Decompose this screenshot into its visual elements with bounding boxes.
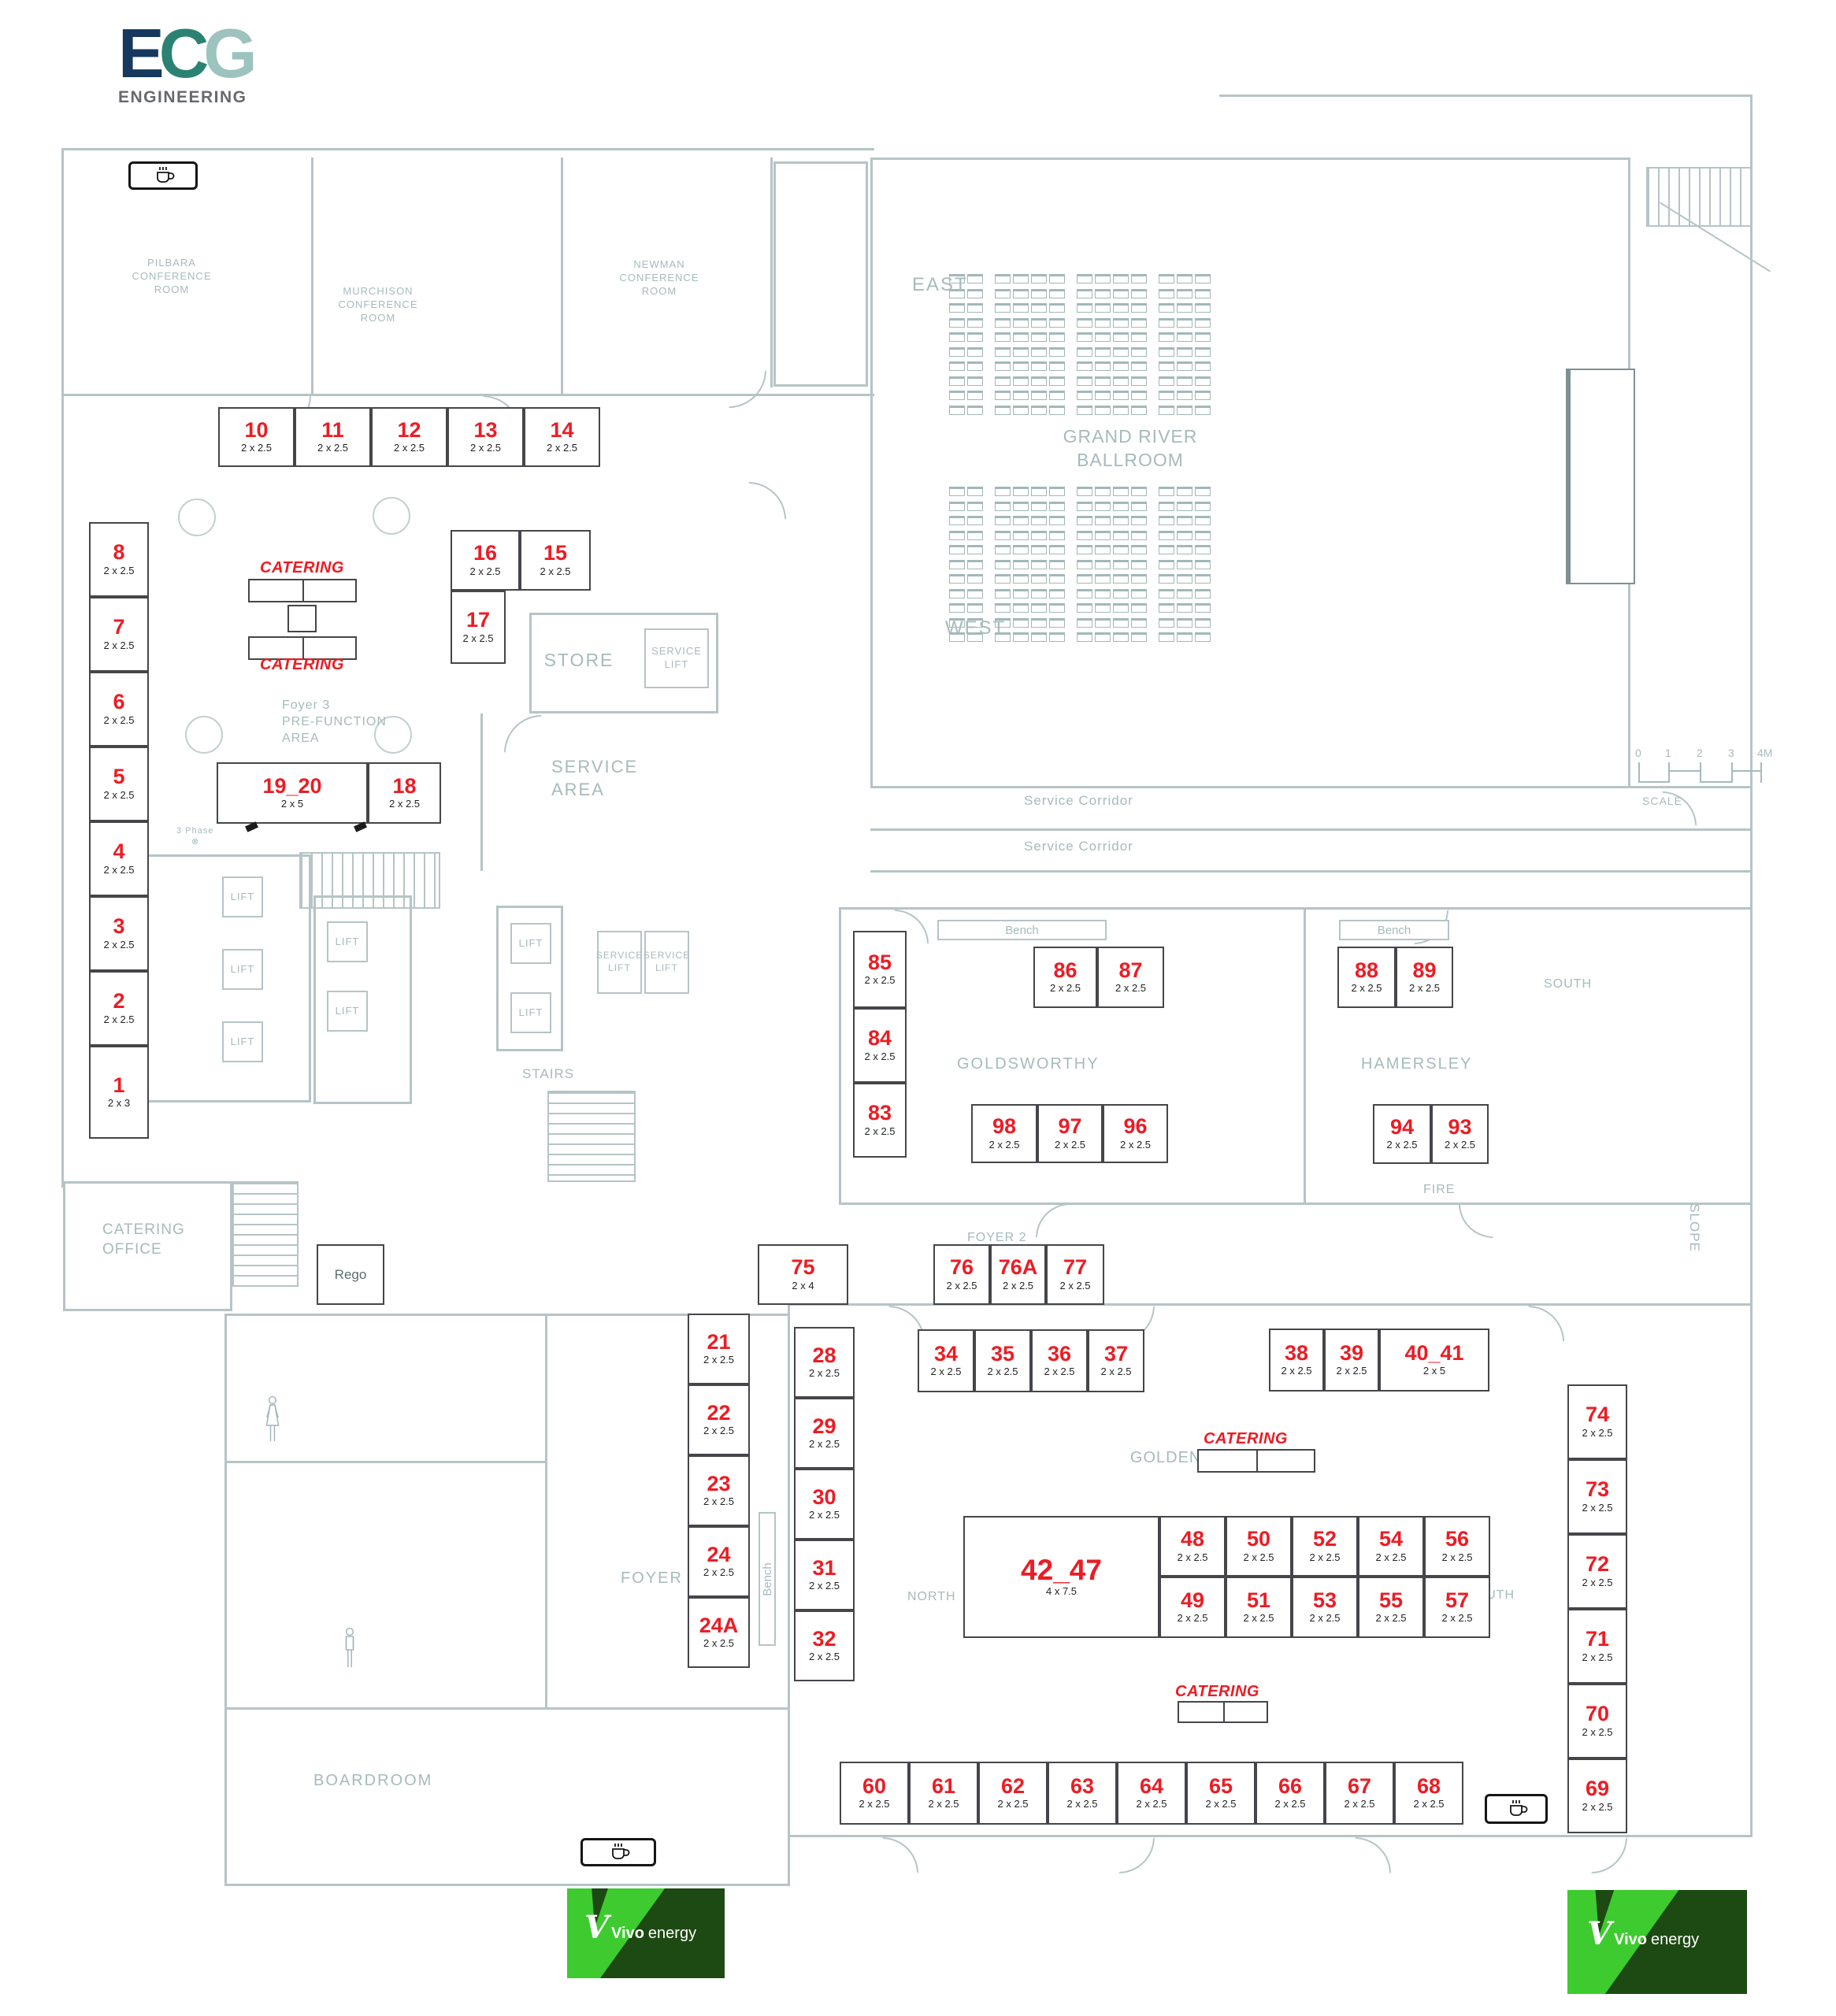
label-catering: CATERING (1204, 1429, 1288, 1449)
chair (1113, 589, 1129, 598)
booth-size: 2 x 2.5 (1177, 1551, 1207, 1563)
booth-size: 2 x 2.5 (1413, 1798, 1444, 1810)
chair (995, 502, 1011, 511)
label-goldsworthy: GOLDSWORTHY (957, 1054, 1100, 1074)
booth-number: 74 (1586, 1405, 1609, 1424)
chair (1077, 274, 1092, 283)
chair (949, 516, 965, 525)
booth-96[interactable]: 962 x 2.5 (1103, 1104, 1168, 1163)
chair (1131, 574, 1147, 584)
chair (1031, 391, 1047, 400)
chair (1113, 332, 1129, 342)
wall-segment (561, 157, 563, 395)
chair (1159, 531, 1174, 540)
chair (1077, 516, 1092, 525)
chair (1013, 361, 1029, 371)
wall-segment (1219, 94, 1753, 97)
booth-18[interactable]: 182 x 2.5 (368, 762, 441, 824)
scale-tick (1668, 762, 1670, 783)
booth-size: 2 x 2.5 (1582, 1801, 1612, 1813)
booth-50[interactable]: 502 x 2.5 (1226, 1516, 1292, 1577)
booth-64[interactable]: 642 x 2.5 (1117, 1762, 1186, 1825)
door-arc (1459, 1203, 1493, 1238)
label-boardroom: BOARDROOM (313, 1770, 432, 1791)
chair (1195, 618, 1211, 628)
chair (1195, 560, 1211, 569)
label-east: EAST (912, 272, 968, 297)
wall-segment (1750, 94, 1753, 1836)
wall-segment (61, 148, 874, 150)
chair (1077, 632, 1092, 642)
booth-16[interactable]: 162 x 2.5 (451, 530, 520, 591)
booth-number: 38 (1285, 1343, 1308, 1362)
booth-97[interactable]: 972 x 2.5 (1037, 1104, 1103, 1163)
booth-19_20[interactable]: 19_202 x 5 (217, 762, 368, 824)
coffee-cup-icon (150, 165, 176, 186)
bench: Bench (1339, 920, 1449, 940)
catering-table (1197, 1449, 1315, 1473)
chair (1031, 618, 1047, 628)
lift-box: SERVICE LIFT (644, 931, 689, 994)
chair (967, 560, 983, 569)
booth-66[interactable]: 662 x 2.5 (1256, 1762, 1325, 1825)
booth-number: 6 (113, 692, 124, 711)
vivo-wordmark: VVivoenergy (1587, 1923, 1699, 1949)
label-foyer-3-pre-function-area: Foyer 3 PRE-FUNCTION AREA (282, 698, 416, 747)
chair (1113, 303, 1129, 313)
booth-88[interactable]: 882 x 2.5 (1337, 947, 1396, 1008)
chair (995, 361, 1011, 371)
booth-number: 84 (868, 1028, 892, 1047)
label-north: NORTH (907, 1589, 956, 1606)
booth-size: 2 x 2.5 (103, 565, 134, 576)
door-arc (1118, 1837, 1155, 1873)
label-stairs: STAIRS (522, 1065, 574, 1083)
booth-38[interactable]: 382 x 2.5 (1269, 1329, 1324, 1392)
booth-77[interactable]: 772 x 2.5 (1046, 1244, 1104, 1305)
booth-22[interactable]: 222 x 2.5 (688, 1384, 750, 1455)
booth-1[interactable]: 12 x 3 (89, 1046, 149, 1139)
chair (995, 574, 1011, 584)
booth-8[interactable]: 82 x 2.5 (89, 522, 149, 597)
chair (1049, 487, 1065, 496)
chair (1113, 545, 1129, 554)
wall-segment (410, 895, 412, 1104)
booth-number: 4 (113, 842, 124, 861)
chair (1031, 560, 1047, 569)
booth-56[interactable]: 562 x 2.5 (1424, 1516, 1490, 1577)
scale-tick-label: 0 (1635, 747, 1641, 759)
chair (1113, 376, 1129, 386)
chair (1013, 347, 1029, 357)
booth-5[interactable]: 52 x 2.5 (89, 747, 149, 821)
booth-size: 2 x 2.5 (946, 1280, 977, 1291)
chair (1013, 502, 1029, 511)
door-arc (748, 482, 786, 520)
chair (1049, 376, 1065, 386)
chair (995, 376, 1011, 386)
booth-54[interactable]: 542 x 2.5 (1358, 1516, 1424, 1577)
wall-segment (529, 711, 718, 713)
chair (1077, 391, 1092, 400)
chair (1177, 516, 1192, 525)
booth-71[interactable]: 712 x 2.5 (1567, 1609, 1627, 1684)
booth-size: 2 x 2.5 (103, 789, 134, 801)
column-circle (185, 716, 223, 754)
chair (1195, 332, 1211, 342)
chair (949, 303, 965, 313)
chair (967, 376, 983, 386)
chair (1077, 406, 1092, 415)
booth-size: 2 x 2.5 (1441, 1551, 1472, 1563)
booth-3[interactable]: 32 x 2.5 (89, 896, 149, 971)
booth-32[interactable]: 322 x 2.5 (794, 1610, 855, 1681)
booth-size: 2 x 2.5 (1344, 1798, 1374, 1810)
label-store: STORE (536, 649, 622, 673)
booth-76A[interactable]: 76A2 x 2.5 (990, 1244, 1046, 1305)
booth-30[interactable]: 302 x 2.5 (794, 1469, 855, 1540)
chair (1031, 361, 1047, 371)
column-circle (178, 498, 216, 536)
booth-40_41[interactable]: 40_412 x 5 (1379, 1329, 1489, 1392)
wall-segment (870, 157, 873, 787)
scale-segment (1638, 781, 1668, 783)
chair (1013, 406, 1029, 415)
wall-segment (63, 1309, 232, 1311)
chair (1177, 545, 1192, 554)
booth-61[interactable]: 612 x 2.5 (909, 1762, 978, 1825)
staircase (547, 1091, 636, 1182)
booth-12[interactable]: 122 x 2.5 (371, 407, 447, 467)
chair (1077, 589, 1092, 598)
booth-size: 2 x 2.5 (1243, 1551, 1274, 1563)
lift-box: LIFT (222, 876, 263, 917)
booth-size: 2 x 2.5 (1409, 982, 1440, 994)
chair (949, 502, 965, 511)
wall-segment (788, 1303, 1753, 1306)
chair (1095, 376, 1111, 386)
wall-segment (839, 907, 1753, 910)
wall-segment (870, 157, 1630, 160)
coffee-cup-icon (605, 1842, 632, 1862)
catering-table (248, 579, 357, 602)
booth-53[interactable]: 532 x 2.5 (1292, 1577, 1358, 1638)
booth-size: 2 x 2.5 (1582, 1502, 1612, 1514)
booth-48[interactable]: 482 x 2.5 (1159, 1516, 1226, 1577)
chair (1159, 516, 1174, 525)
chair (1013, 560, 1029, 569)
wall-segment (496, 1049, 563, 1051)
booth-size: 2 x 2.5 (1582, 1651, 1612, 1663)
chair (1131, 347, 1147, 357)
booth-number: 29 (812, 1417, 836, 1436)
booth-36[interactable]: 362 x 2.5 (1031, 1329, 1088, 1392)
booth-size: 2 x 2.5 (703, 1637, 734, 1649)
wall-segment (224, 1707, 788, 1710)
booth-number: 63 (1070, 1777, 1094, 1795)
booth-51[interactable]: 512 x 2.5 (1226, 1577, 1292, 1638)
label-hamersley: HAMERSLEY (1361, 1054, 1472, 1074)
chair (1095, 274, 1111, 283)
scale-segment (1700, 781, 1731, 783)
booth-60[interactable]: 602 x 2.5 (840, 1762, 909, 1825)
booth-89[interactable]: 892 x 2.5 (1396, 947, 1453, 1008)
label-newman-conference-room: NEWMAN CONFERENCE ROOM (604, 258, 714, 298)
lift-box: SERVICE LIFT (644, 628, 709, 688)
wall-segment (545, 1314, 547, 1709)
vivo-brand2: energy (648, 1925, 696, 1943)
chair (1131, 632, 1147, 642)
booth-size: 2 x 2.5 (1386, 1139, 1417, 1151)
chair (1049, 332, 1065, 342)
booth-62[interactable]: 622 x 2.5 (978, 1762, 1048, 1825)
booth-39[interactable]: 392 x 2.5 (1324, 1329, 1379, 1392)
chair (949, 560, 965, 569)
booth-28[interactable]: 282 x 2.5 (794, 1327, 855, 1398)
chair (1195, 632, 1211, 642)
catering-table (1178, 1701, 1268, 1723)
chair (1013, 516, 1029, 525)
booth-number: 98 (992, 1117, 1016, 1136)
chair (1077, 289, 1092, 298)
rego-booth[interactable]: Rego (317, 1244, 384, 1305)
booth-number: 5 (113, 767, 124, 786)
booth-37[interactable]: 372 x 2.5 (1088, 1329, 1144, 1392)
chair (1131, 618, 1147, 628)
booth-49[interactable]: 492 x 2.5 (1159, 1577, 1226, 1638)
booth-73[interactable]: 732 x 2.5 (1567, 1459, 1627, 1534)
chair (1195, 318, 1211, 328)
booth-29[interactable]: 292 x 2.5 (794, 1398, 855, 1469)
scale-tick-label: 1 (1665, 747, 1671, 759)
booth-size: 2 x 2.5 (809, 1367, 840, 1379)
booth-65[interactable]: 652 x 2.5 (1186, 1762, 1256, 1825)
booth-number: 30 (812, 1488, 836, 1506)
chair (1159, 618, 1174, 628)
booth-34[interactable]: 342 x 2.5 (918, 1329, 974, 1392)
chair (1113, 318, 1129, 328)
booth-69[interactable]: 692 x 2.5 (1567, 1758, 1627, 1833)
booth-14[interactable]: 142 x 2.5 (524, 407, 600, 467)
booth-6[interactable]: 62 x 2.5 (89, 672, 149, 747)
booth-number: 13 (473, 421, 497, 439)
booth-number: 37 (1104, 1344, 1128, 1363)
booth-number: 53 (1313, 1591, 1337, 1610)
booth-15[interactable]: 152 x 2.5 (520, 530, 591, 591)
booth-number: 89 (1412, 961, 1436, 980)
chair (1177, 376, 1192, 386)
chair (1013, 289, 1029, 298)
chair (967, 406, 983, 415)
booth-63[interactable]: 632 x 2.5 (1048, 1762, 1117, 1825)
booth-number: 48 (1181, 1529, 1204, 1548)
lift-box: LIFT (222, 949, 263, 990)
label-catering: CATERING (260, 654, 344, 675)
wall-segment (224, 1461, 547, 1463)
chair (1195, 376, 1211, 386)
chair (967, 531, 983, 540)
chair (1195, 502, 1211, 511)
booth-76[interactable]: 762 x 2.5 (933, 1244, 990, 1305)
booth-68[interactable]: 682 x 2.5 (1394, 1762, 1463, 1825)
booth-number: 22 (707, 1403, 730, 1422)
chair (1031, 289, 1047, 298)
booth-17[interactable]: 172 x 2.5 (451, 591, 506, 664)
chair (967, 347, 983, 357)
booth-31[interactable]: 312 x 2.5 (794, 1540, 855, 1610)
label-grand-river-ballroom: GRAND RIVER BALLROOM (1016, 425, 1244, 472)
booth-21[interactable]: 212 x 2.5 (688, 1314, 750, 1384)
booth-74[interactable]: 742 x 2.5 (1567, 1384, 1627, 1459)
staircase (232, 1181, 299, 1287)
booth-number: 60 (862, 1777, 886, 1795)
booth-98[interactable]: 982 x 2.5 (971, 1104, 1037, 1163)
chair (1195, 487, 1211, 496)
booth-size: 2 x 2.5 (470, 442, 501, 454)
chair (1077, 531, 1092, 540)
vivo-brand: Vivo (611, 1925, 644, 1943)
chair (1013, 303, 1029, 313)
wall-segment (529, 613, 532, 713)
chair (1177, 574, 1192, 584)
booth-size: 2 x 2.5 (928, 1798, 959, 1810)
chair (1131, 531, 1147, 540)
floor-plan: E C G ENGINEERING 102 x 2.5112 x 2.5122 … (0, 0, 1836, 2016)
chair (1049, 560, 1065, 569)
booth-24[interactable]: 242 x 2.5 (688, 1526, 750, 1597)
lift-box: LIFT (327, 921, 368, 962)
lift-box: LIFT (510, 992, 551, 1033)
chair (1177, 632, 1192, 642)
chair (967, 502, 983, 511)
booth-number: 96 (1123, 1117, 1147, 1136)
booth-size: 2 x 2.5 (1281, 1365, 1311, 1377)
chair (949, 406, 965, 415)
chair (1159, 603, 1174, 613)
booth-7[interactable]: 72 x 2.5 (89, 597, 149, 672)
booth-number: 21 (707, 1332, 730, 1351)
chair (1031, 516, 1047, 525)
chair (1031, 589, 1047, 598)
chair (1049, 289, 1065, 298)
booth-size: 2 x 2.5 (809, 1651, 840, 1662)
booth-number: 55 (1379, 1591, 1403, 1610)
booth-number: 69 (1586, 1779, 1609, 1798)
wall-segment (496, 906, 563, 908)
booth-23[interactable]: 232 x 2.5 (688, 1455, 750, 1526)
booth-35[interactable]: 352 x 2.5 (974, 1329, 1031, 1392)
wall-segment (61, 148, 64, 1188)
chair (1159, 502, 1174, 511)
booth-94[interactable]: 942 x 2.5 (1373, 1104, 1431, 1164)
chair (1095, 574, 1111, 584)
chair (1131, 502, 1147, 511)
booth-size: 2 x 2.5 (809, 1580, 840, 1592)
booth-11[interactable]: 112 x 2.5 (295, 407, 371, 467)
chair (1031, 574, 1047, 584)
chair (1177, 391, 1192, 400)
booth-size: 2 x 2.5 (864, 974, 895, 986)
chair (1159, 347, 1174, 357)
booth-size: 2 x 2.5 (1055, 1139, 1085, 1151)
booth-size: 2 x 2.5 (1243, 1612, 1274, 1624)
booth-24A[interactable]: 24A2 x 2.5 (688, 1597, 750, 1668)
label-catering: CATERING (1175, 1681, 1259, 1702)
booth-number: 66 (1278, 1777, 1302, 1795)
booth-size: 2 x 2.5 (1050, 982, 1081, 994)
booth-size: 2 x 2.5 (1582, 1577, 1612, 1588)
booth-size: 2 x 2.5 (703, 1495, 734, 1507)
chair (1095, 632, 1111, 642)
booth-87[interactable]: 872 x 2.5 (1097, 947, 1164, 1008)
booth-size: 2 x 2.5 (103, 864, 134, 876)
chair (949, 487, 965, 496)
booth-4[interactable]: 42 x 2.5 (89, 821, 149, 896)
booth-52[interactable]: 522 x 2.5 (1292, 1516, 1358, 1577)
booth-86[interactable]: 862 x 2.5 (1033, 947, 1097, 1008)
booth-size: 2 x 2.5 (462, 632, 493, 644)
vivo-v-mark: V (584, 1917, 609, 1939)
booth-84[interactable]: 842 x 2.5 (853, 1008, 907, 1083)
booth-2[interactable]: 22 x 2.5 (89, 971, 149, 1046)
chair (995, 406, 1011, 415)
booth-size: 2 x 2.5 (469, 565, 500, 577)
booth-number: 88 (1355, 961, 1378, 980)
booth-67[interactable]: 672 x 2.5 (1325, 1762, 1394, 1825)
booth-55[interactable]: 552 x 2.5 (1358, 1577, 1424, 1638)
female-restroom-icon (263, 1395, 282, 1446)
booth-70[interactable]: 702 x 2.5 (1567, 1684, 1627, 1758)
booth-number: 36 (1048, 1344, 1071, 1363)
chair (1095, 303, 1111, 313)
chair (949, 347, 965, 357)
booth-number: 15 (543, 543, 567, 562)
booth-number: 94 (1390, 1117, 1414, 1136)
booth-83[interactable]: 832 x 2.5 (853, 1083, 907, 1158)
chair (1159, 318, 1174, 328)
wall-segment (496, 906, 499, 1051)
rego-label: Rego (335, 1267, 367, 1283)
booth-size: 2 x 2.5 (859, 1798, 889, 1810)
booth-72[interactable]: 722 x 2.5 (1567, 1534, 1627, 1609)
ecg-engineering-logo: E C G ENGINEERING (118, 20, 252, 107)
booth-number: 86 (1053, 961, 1077, 980)
booth-10[interactable]: 102 x 2.5 (218, 407, 295, 467)
booth-size: 2 x 2.5 (1205, 1798, 1236, 1810)
chair (1013, 531, 1029, 540)
chair (1177, 531, 1192, 540)
booth-size: 2 x 2.5 (1582, 1427, 1612, 1439)
booth-57[interactable]: 572 x 2.5 (1424, 1577, 1490, 1638)
booth-number: 52 (1313, 1529, 1337, 1548)
chair (1113, 406, 1129, 415)
booth-85[interactable]: 852 x 2.5 (853, 931, 907, 1008)
chair (1195, 361, 1211, 371)
booth-13[interactable]: 132 x 2.5 (447, 407, 524, 467)
booth-93[interactable]: 932 x 2.5 (1431, 1104, 1489, 1164)
ecg-letters: E C G (118, 20, 252, 87)
booth-number: 62 (1001, 1777, 1025, 1795)
wall-segment (716, 613, 718, 713)
chair (1049, 574, 1065, 584)
label-3-phase: 3 Phase (176, 825, 213, 836)
booth-75[interactable]: 752 x 4 (758, 1244, 848, 1305)
booth-42_47[interactable]: 42_474 x 7.5 (963, 1516, 1159, 1638)
male-restroom-icon (340, 1627, 359, 1677)
chair (1077, 303, 1092, 313)
chair (995, 289, 1011, 298)
wall-segment (480, 713, 483, 871)
